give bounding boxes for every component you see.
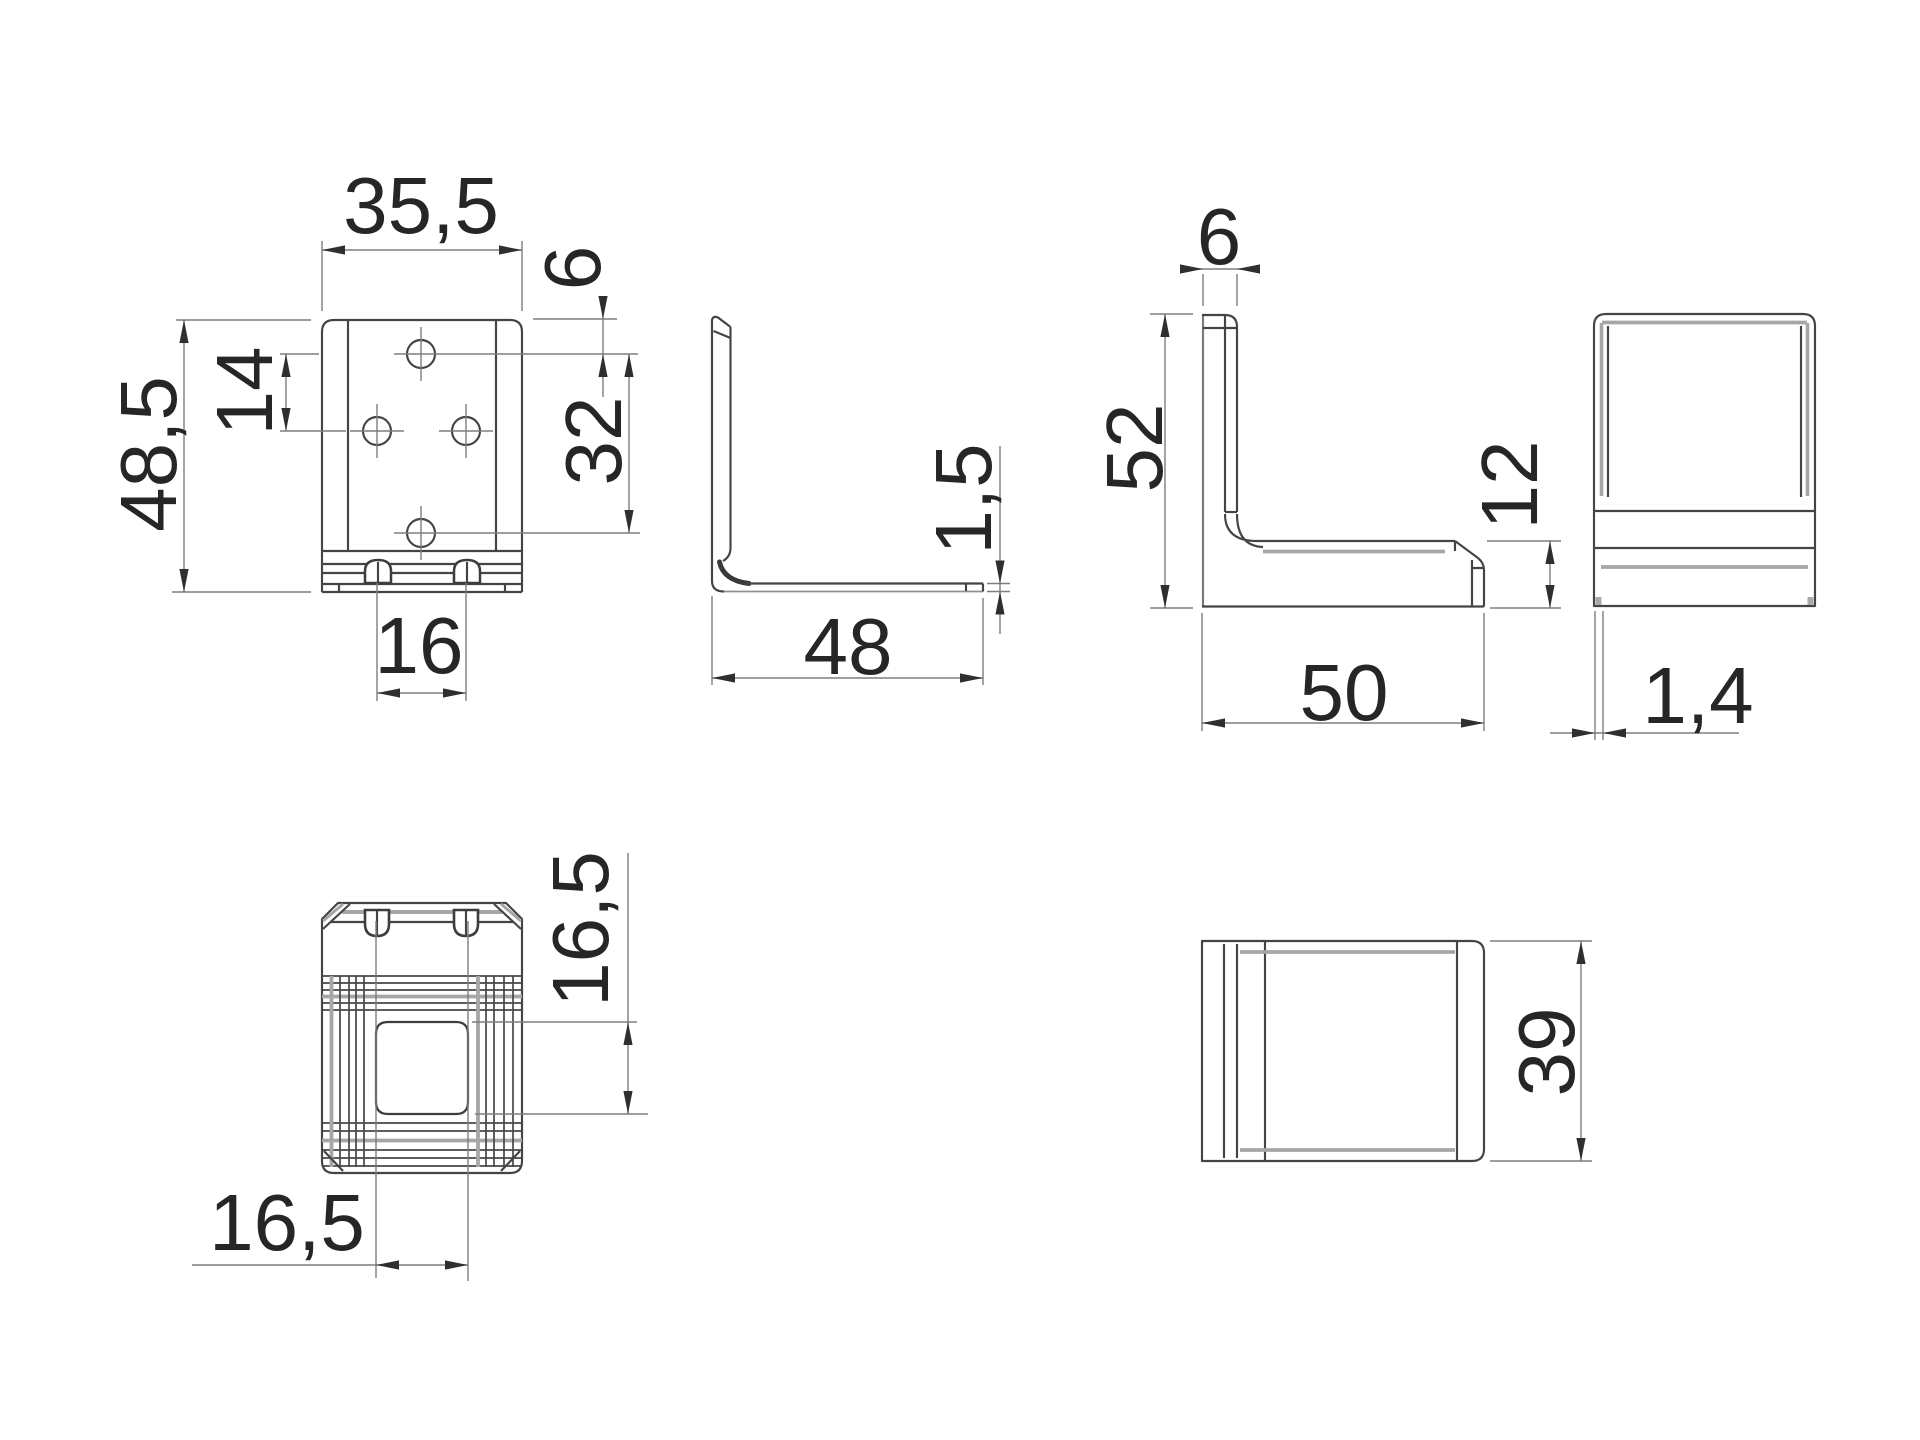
svg-text:16,5: 16,5 [209, 1178, 365, 1267]
svg-text:52: 52 [1090, 404, 1179, 493]
svg-text:39: 39 [1502, 1008, 1591, 1097]
svg-text:12: 12 [1465, 441, 1554, 530]
svg-text:1,5: 1,5 [919, 443, 1008, 554]
svg-text:6: 6 [1197, 192, 1242, 281]
svg-text:48: 48 [804, 602, 893, 691]
svg-text:1,4: 1,4 [1642, 651, 1753, 740]
svg-text:16,5: 16,5 [536, 851, 625, 1007]
svg-text:48,5: 48,5 [104, 376, 193, 532]
svg-text:32: 32 [549, 397, 638, 486]
svg-text:6: 6 [528, 246, 617, 291]
svg-text:14: 14 [200, 347, 289, 436]
svg-text:16: 16 [375, 601, 464, 690]
svg-text:35,5: 35,5 [343, 161, 499, 250]
svg-text:50: 50 [1300, 648, 1389, 737]
